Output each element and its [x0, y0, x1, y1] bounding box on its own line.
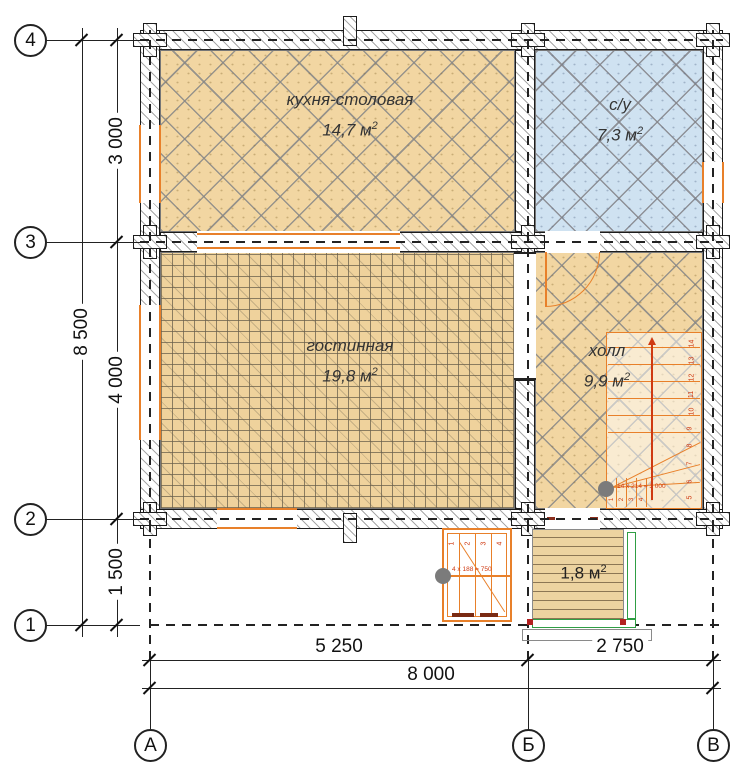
dim-label-3000: 3 000: [106, 113, 128, 169]
stair-step-number: 8: [686, 444, 693, 448]
axis-centerline-3: [140, 241, 723, 243]
axis-centerline-V-ext: [712, 529, 714, 660]
stair-step-number: 4: [496, 542, 503, 546]
dim-label-1500: 1 500: [106, 544, 128, 600]
axis-line-B: [528, 660, 529, 729]
wall-living-hall: [515, 380, 535, 509]
stair-step-number: 9: [686, 427, 693, 431]
stair-winder-number: 3: [629, 498, 636, 501]
log-tab: [343, 16, 357, 46]
stair-step-number: 5: [686, 496, 693, 500]
stair-step-number: 6: [686, 480, 693, 484]
stair-step-number: 10: [688, 408, 695, 416]
porch-area-label: 1,8 м2: [536, 556, 631, 587]
dim-label-8000: 8 000: [403, 664, 459, 686]
axis-marker-row-3: 3: [14, 226, 47, 259]
axis-marker-row-4: 4: [14, 24, 47, 57]
newel-post-dot: [435, 568, 451, 584]
opening-frame-line: [197, 233, 400, 235]
wall-end-cap: [514, 378, 536, 380]
railing-post-mark: [620, 619, 626, 625]
stair-winder-number: 4: [639, 498, 646, 501]
stair-step-number: 2: [464, 542, 471, 546]
axis-marker-col-B: Б: [512, 729, 545, 762]
dim-line-bottom-segments: [142, 660, 721, 661]
room-name: гостинная: [205, 333, 495, 359]
room-living-label: гостинная 19,8 м2: [205, 333, 495, 390]
axis-line-3: [46, 242, 140, 243]
axis-centerline-4: [140, 39, 723, 41]
stair-handrail-line: [443, 575, 512, 577]
newel-post-dot: [598, 481, 614, 497]
axis-line-4: [46, 40, 140, 41]
dim-label-5250: 5 250: [311, 636, 367, 658]
room-area: 19,8 м2: [205, 359, 495, 390]
axis-marker-row-1: 1: [14, 609, 47, 642]
axis-line-2: [46, 519, 140, 520]
opening-living-hall: [514, 252, 536, 380]
room-bathroom-label: с/у 7,3 м2: [545, 92, 695, 149]
floor-plan: 1,8 м2 1 2 3 4 4 х 188 = 750 14 13 12 11…: [0, 0, 753, 768]
stair-step-number: 7: [686, 462, 693, 466]
room-name: холл: [537, 338, 677, 364]
interior-stair-formula: 14 х 214 = 3 000: [617, 483, 666, 490]
axis-centerline-A: [149, 30, 151, 529]
room-kitchen-dining-label: кухня-столовая 14,7 м2: [205, 87, 495, 144]
door-leaf-bathroom: [545, 252, 547, 307]
stair-step-number: 14: [688, 340, 695, 348]
dim-label-8500: 8 500: [71, 304, 93, 360]
wall-kitchen-bathroom: [515, 50, 535, 232]
axis-line-A: [150, 660, 151, 729]
axis-centerline-B: [527, 30, 529, 529]
stair-step-number: 11: [688, 391, 695, 398]
axis-line-1: [46, 625, 140, 626]
stair-base-mark: [452, 613, 474, 617]
axis-centerline-V: [712, 30, 714, 529]
axis-marker-row-2: 2: [14, 503, 47, 536]
railing-post-mark: [527, 619, 533, 625]
exterior-stair-formula: 4 х 188 = 750: [452, 566, 492, 573]
stair-base-mark: [480, 613, 498, 617]
axis-centerline-1: [150, 624, 723, 626]
stair-step-number: 13: [688, 357, 695, 365]
axis-marker-col-A: А: [134, 729, 167, 762]
stair-tread-line: [608, 415, 700, 416]
dim-line-bottom-total: [142, 688, 721, 689]
room-area: 7,3 м2: [545, 118, 695, 149]
stair-tread-line: [608, 398, 700, 399]
room-area: 14,7 м2: [205, 113, 495, 144]
dim-label-2750: 2 750: [592, 636, 648, 658]
opening-frame-line: [197, 247, 400, 249]
stair-step-number: 12: [688, 374, 695, 382]
axis-line-V: [713, 660, 714, 729]
axis-marker-col-V: В: [697, 729, 730, 762]
room-area: 9,9 м2: [537, 364, 677, 395]
room-name: кухня-столовая: [205, 87, 495, 113]
stair-step-number: 1: [448, 542, 455, 546]
stair-winder-number: 2: [619, 498, 626, 501]
room-hall-label: холл 9,9 м2: [537, 338, 677, 395]
stair-winder-number: 1: [609, 498, 616, 501]
room-name: с/у: [545, 92, 695, 118]
axis-centerline-2: [140, 518, 723, 520]
wall-end-cap: [514, 252, 536, 254]
dim-label-4000: 4 000: [106, 352, 128, 408]
axis-centerline-A-ext: [149, 529, 151, 660]
stair-tread-line: [608, 432, 700, 433]
stair-step-number: 3: [480, 542, 487, 546]
